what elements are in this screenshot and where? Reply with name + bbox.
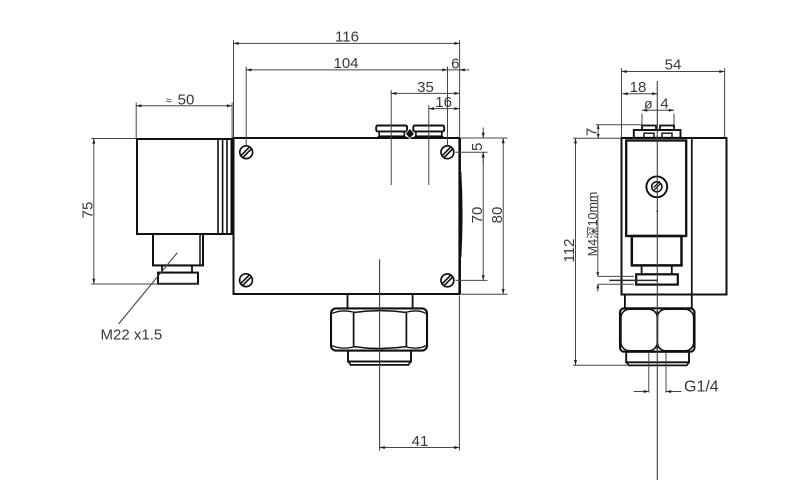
svg-text:6: 6 — [451, 55, 459, 72]
svg-text:M22 x1.5: M22 x1.5 — [101, 327, 163, 344]
svg-text:116: 116 — [335, 29, 359, 46]
svg-text:≈: ≈ — [165, 95, 171, 107]
svg-text:80: 80 — [489, 207, 506, 224]
svg-text:18: 18 — [630, 79, 647, 96]
svg-text:4: 4 — [660, 96, 668, 113]
svg-text:G1/4: G1/4 — [684, 379, 719, 396]
svg-text:70: 70 — [469, 207, 486, 224]
svg-text:M4深10mm: M4深10mm — [586, 192, 600, 257]
svg-text:35: 35 — [417, 79, 434, 96]
svg-text:54: 54 — [665, 57, 682, 74]
svg-text:ø: ø — [644, 96, 653, 112]
svg-text:5: 5 — [469, 143, 486, 151]
svg-text:16: 16 — [435, 94, 452, 111]
svg-text:112: 112 — [561, 239, 578, 263]
svg-text:41: 41 — [412, 433, 429, 450]
svg-text:7: 7 — [583, 128, 600, 136]
svg-text:50: 50 — [178, 91, 195, 108]
svg-text:75: 75 — [80, 202, 97, 219]
svg-text:104: 104 — [333, 55, 358, 72]
